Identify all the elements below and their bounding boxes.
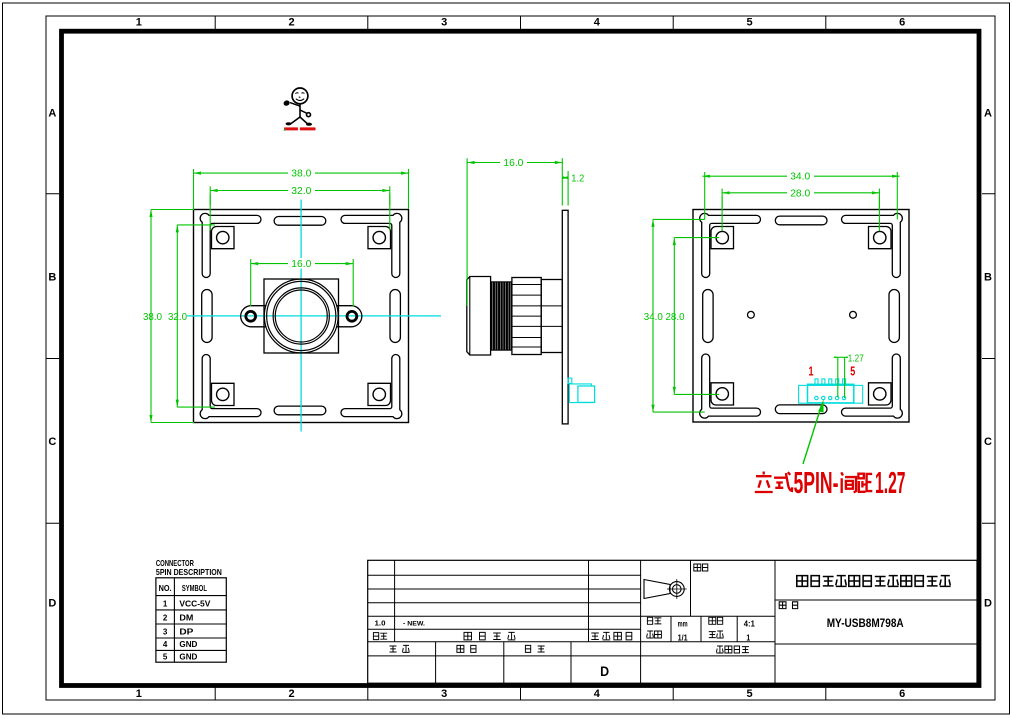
svg-text:4: 4 [594, 17, 601, 29]
svg-text:mm: mm [678, 620, 688, 629]
svg-text:SYMBOL: SYMBOL [182, 584, 207, 593]
svg-text:C: C [984, 436, 992, 448]
svg-text:2: 2 [163, 614, 168, 623]
svg-text:D: D [984, 598, 992, 610]
svg-text:4: 4 [594, 688, 601, 700]
svg-text:B: B [48, 272, 56, 284]
svg-text:1.27: 1.27 [875, 465, 906, 500]
svg-text:3: 3 [163, 628, 168, 637]
svg-text:28.0: 28.0 [666, 311, 685, 323]
svg-text:DP: DP [179, 628, 194, 637]
svg-text:6: 6 [899, 17, 905, 29]
svg-text:5: 5 [746, 17, 752, 29]
svg-text:- NEW.: - NEW. [403, 620, 425, 627]
svg-text:C: C [48, 436, 56, 448]
svg-text:D: D [600, 663, 609, 679]
svg-text:3: 3 [441, 688, 447, 700]
svg-text:A: A [984, 108, 992, 120]
svg-text:NO.: NO. [159, 584, 172, 593]
svg-text:1: 1 [163, 600, 168, 609]
svg-text:16.0: 16.0 [503, 157, 523, 169]
svg-text:38.0: 38.0 [143, 311, 162, 323]
svg-text:32.0: 32.0 [291, 185, 311, 197]
svg-text:1.0: 1.0 [375, 619, 386, 628]
svg-text:5: 5 [746, 688, 752, 700]
svg-text:1: 1 [136, 17, 142, 29]
svg-text:1.27: 1.27 [848, 352, 864, 364]
svg-text:34.0: 34.0 [644, 311, 663, 323]
svg-text:5: 5 [850, 365, 855, 379]
svg-text:28.0: 28.0 [790, 187, 810, 199]
svg-text:B: B [984, 272, 992, 284]
svg-text:1: 1 [136, 688, 142, 700]
svg-text:38.0: 38.0 [291, 168, 311, 180]
svg-text:2: 2 [288, 17, 294, 29]
svg-text:DM: DM [179, 614, 193, 623]
svg-text:4: 4 [163, 640, 168, 649]
svg-text:2: 2 [288, 688, 294, 700]
svg-text:5PIN-: 5PIN- [794, 465, 839, 500]
svg-text:5: 5 [163, 652, 168, 661]
svg-text:1/1: 1/1 [678, 633, 688, 642]
svg-text:1: 1 [746, 633, 750, 642]
svg-text:MY-USB8M798A: MY-USB8M798A [827, 618, 904, 630]
svg-text:5PIN DESCRIPTION: 5PIN DESCRIPTION [156, 567, 222, 577]
svg-text:6: 6 [899, 688, 905, 700]
svg-text:3: 3 [441, 17, 447, 29]
svg-text:1: 1 [809, 365, 814, 379]
svg-text:D: D [48, 598, 56, 610]
svg-text:GND: GND [179, 652, 197, 661]
svg-text:GND: GND [179, 640, 197, 649]
svg-text:A: A [48, 108, 56, 120]
svg-text:VCC-5V: VCC-5V [179, 600, 211, 609]
svg-text:4:1: 4:1 [744, 620, 756, 629]
svg-text:34.0: 34.0 [790, 171, 810, 183]
svg-text:16.0: 16.0 [291, 258, 311, 270]
svg-text:32.0: 32.0 [168, 311, 187, 323]
svg-text:1.2: 1.2 [571, 172, 584, 184]
